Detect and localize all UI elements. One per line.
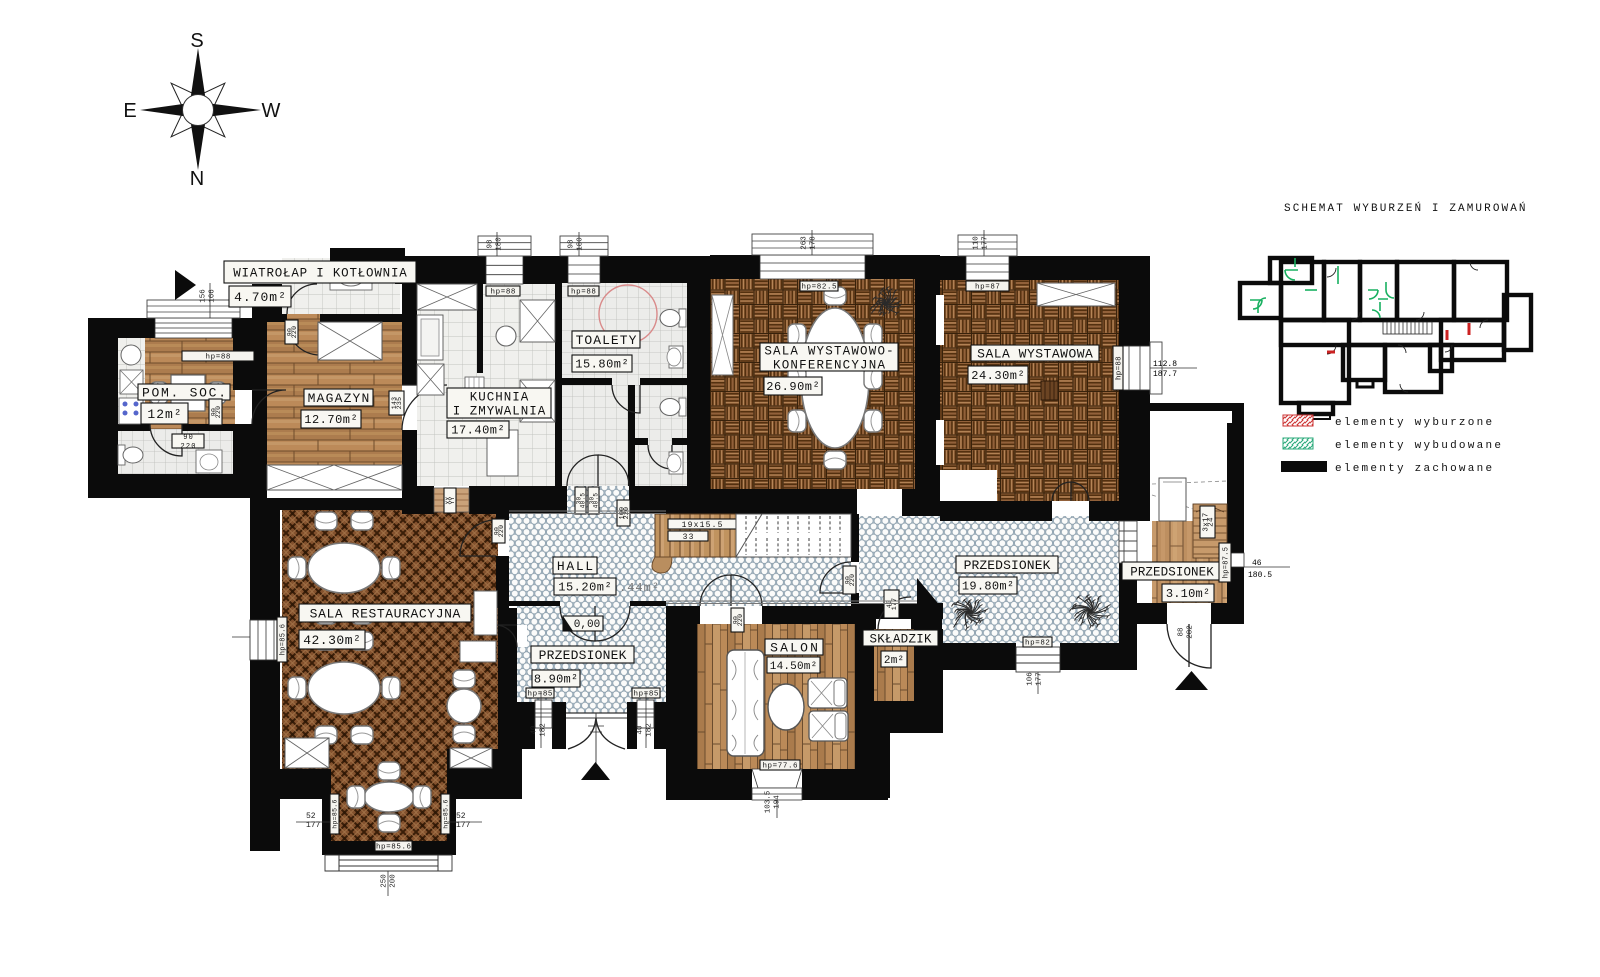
svg-text:KONFERENCYJNA: KONFERENCYJNA <box>773 358 886 372</box>
svg-text:156: 156 <box>199 289 207 303</box>
svg-text:TOALETY: TOALETY <box>576 333 638 348</box>
svg-text:263: 263 <box>800 236 808 250</box>
svg-text:42.30m²: 42.30m² <box>303 633 361 648</box>
svg-text:220: 220 <box>180 443 196 451</box>
svg-text:elementy wybudowane: elementy wybudowane <box>1335 440 1503 452</box>
svg-text:180.5: 180.5 <box>1248 571 1272 580</box>
svg-text:40.5: 40.5 <box>579 493 586 509</box>
svg-text:40.5: 40.5 <box>592 493 599 509</box>
svg-text:hp=85.6: hp=85.6 <box>279 624 287 656</box>
svg-text:PRZEDSIONEK: PRZEDSIONEK <box>1130 565 1214 579</box>
svg-text:12.70m²: 12.70m² <box>304 413 358 427</box>
svg-text:N: N <box>190 168 204 190</box>
svg-text:19.80m²: 19.80m² <box>962 580 1015 594</box>
svg-text:hp=87: hp=87 <box>975 284 1001 292</box>
svg-text:4.70m²: 4.70m² <box>234 290 287 305</box>
svg-text:98: 98 <box>486 239 494 248</box>
svg-text:187.7: 187.7 <box>1153 370 1177 379</box>
svg-text:12m²: 12m² <box>147 407 182 422</box>
svg-text:E: E <box>123 100 136 122</box>
svg-text:33: 33 <box>683 533 695 542</box>
svg-text:24: 24 <box>1208 517 1216 527</box>
svg-text:hp=85: hp=85 <box>528 691 554 699</box>
svg-text:SCHEMAT WYBURZEŃ I ZAMUROWAŃ: SCHEMAT WYBURZEŃ I ZAMUROWAŃ <box>1284 201 1528 215</box>
svg-text:SKŁADZIK: SKŁADZIK <box>869 632 932 646</box>
svg-text:PRZEDSIONEK: PRZEDSIONEK <box>964 558 1051 573</box>
svg-text:8.90m²: 8.90m² <box>534 673 578 687</box>
svg-text:103.5: 103.5 <box>764 790 772 813</box>
svg-text:194: 194 <box>773 795 781 809</box>
svg-text:178: 178 <box>809 236 817 250</box>
svg-text:220: 220 <box>498 525 505 538</box>
svg-text:177: 177 <box>1035 672 1043 686</box>
svg-text:17.40m²: 17.40m² <box>451 424 505 438</box>
svg-text:282: 282 <box>1186 625 1194 639</box>
svg-text:hp=88: hp=88 <box>571 289 597 297</box>
svg-text:88: 88 <box>1177 627 1185 636</box>
svg-text:110: 110 <box>972 236 980 250</box>
svg-text:40: 40 <box>530 725 538 735</box>
svg-text:14.50m²: 14.50m² <box>770 661 818 673</box>
svg-text:2m²: 2m² <box>884 655 904 667</box>
svg-text:hp=87.5: hp=87.5 <box>1222 547 1230 579</box>
svg-text:177: 177 <box>981 236 989 250</box>
svg-text:52: 52 <box>456 812 466 821</box>
svg-text:SALON: SALON <box>770 641 820 656</box>
svg-text:106: 106 <box>1026 672 1034 686</box>
svg-text:15.80m²: 15.80m² <box>575 358 629 372</box>
svg-text:52: 52 <box>306 812 316 821</box>
svg-text:235: 235 <box>396 397 403 410</box>
svg-text:180: 180 <box>576 237 584 251</box>
svg-text:3.10m²: 3.10m² <box>1166 587 1210 601</box>
svg-text:40: 40 <box>636 725 644 735</box>
svg-text:90: 90 <box>183 434 194 442</box>
svg-text:SALA WYSTAWOWA: SALA WYSTAWOWA <box>977 347 1093 362</box>
svg-text:220: 220 <box>737 614 744 627</box>
svg-text:hp=85.6: hp=85.6 <box>443 799 450 828</box>
svg-text:SALA RESTAURACYJNA: SALA RESTAURACYJNA <box>310 607 461 622</box>
svg-text:15.20m²: 15.20m² <box>558 581 612 595</box>
svg-text:PRZEDSIONEK: PRZEDSIONEK <box>539 648 627 663</box>
svg-text:hp=88: hp=88 <box>491 289 517 297</box>
svg-text:I ZMYWALNIA: I ZMYWALNIA <box>453 404 547 418</box>
svg-text:200: 200 <box>389 874 397 888</box>
svg-text:POM. SOC.: POM. SOC. <box>142 386 228 401</box>
svg-text:hp=82: hp=82 <box>1025 640 1051 648</box>
svg-text:182: 182 <box>645 723 653 737</box>
svg-text:26.90m²: 26.90m² <box>766 380 820 394</box>
svg-text:250: 250 <box>380 874 388 888</box>
svg-text:hp=85.6: hp=85.6 <box>332 799 339 828</box>
svg-text:elementy wyburzone: elementy wyburzone <box>1335 417 1494 429</box>
svg-text:0,00: 0,00 <box>574 619 600 631</box>
svg-text:46: 46 <box>1252 559 1262 568</box>
svg-text:YY: YY <box>449 497 456 505</box>
svg-text:MAGAZYN: MAGAZYN <box>308 391 371 406</box>
svg-text:hp=88: hp=88 <box>206 354 232 362</box>
svg-text:SALA WYSTAWOWO-: SALA WYSTAWOWO- <box>764 344 895 358</box>
svg-text:180: 180 <box>495 237 503 251</box>
svg-text:.44m²: .44m² <box>619 581 660 595</box>
svg-text:elementy zachowane: elementy zachowane <box>1335 463 1494 475</box>
svg-text:220: 220 <box>215 406 222 419</box>
svg-text:S: S <box>190 30 203 52</box>
svg-text:W: W <box>262 100 281 122</box>
svg-text:hp=82.5: hp=82.5 <box>801 284 837 292</box>
svg-text:98: 98 <box>567 239 575 248</box>
svg-text:24.30m²: 24.30m² <box>971 369 1025 383</box>
svg-text:19x15.5: 19x15.5 <box>682 521 724 530</box>
svg-text:166: 166 <box>208 289 216 303</box>
svg-text:hp=77.6: hp=77.6 <box>762 763 798 771</box>
svg-text:HALL: HALL <box>557 559 595 574</box>
svg-text:220: 220 <box>291 326 298 339</box>
svg-text:hp=88: hp=88 <box>1116 356 1124 380</box>
svg-text:220: 220 <box>849 574 856 587</box>
svg-text:hp=85.6: hp=85.6 <box>376 844 412 852</box>
svg-text:KUCHNIA: KUCHNIA <box>470 390 530 404</box>
svg-text:WIATROŁAP I KOTŁOWNIA: WIATROŁAP I KOTŁOWNIA <box>233 266 407 280</box>
svg-text:112.8: 112.8 <box>1153 360 1177 369</box>
